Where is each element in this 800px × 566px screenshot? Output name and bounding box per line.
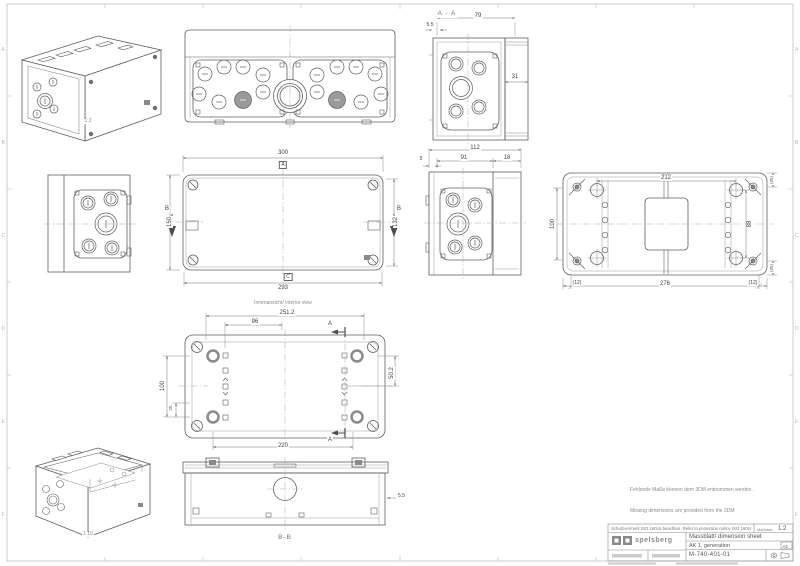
section-a-cutline (331, 327, 345, 438)
dim-lid-width: 300 (277, 150, 289, 156)
section-a-letter-bottom: A (327, 437, 333, 443)
view-side-left (44, 175, 136, 272)
dim-base-right: 88 (747, 220, 753, 229)
dim-bb-wall: 5.5 (397, 494, 406, 499)
view-section-aa (425, 18, 528, 145)
section-a-letter-top: A (327, 321, 333, 327)
dim-interior-right: 50.2 (389, 366, 395, 380)
grid-letter: E (795, 419, 798, 425)
section-aa-membranes (449, 57, 486, 118)
scale-field-label: Maßstab (757, 527, 773, 532)
document-title: Massblatt/ dimension sheet (689, 534, 762, 540)
dim-base-top: 212 (660, 175, 672, 181)
grid-letter: B (2, 140, 5, 146)
scale-label-iso-closed: 1:2 (84, 119, 93, 124)
interior-bosses (208, 351, 363, 423)
view-iso-closed-box (22, 36, 161, 141)
datum-box-top: A (279, 161, 287, 169)
document-number: M-740-401-01 (689, 552, 730, 558)
document-subtitle: AK 1. generation (689, 543, 730, 549)
view-interior (163, 313, 399, 450)
grid-letter: F (2, 512, 5, 518)
grid-letter: C (795, 233, 799, 239)
drawing-sheet: A B C D E F A B C D E F 1:2 A - A 79 5.5… (0, 0, 800, 566)
section-bb-title: B-B (277, 535, 293, 542)
small-membranes-right (310, 60, 388, 109)
dim-interior-height: 100 (160, 380, 166, 392)
grid-letter: B (795, 140, 798, 146)
section-b-letter-left: B (164, 206, 170, 212)
grid-letter: D (2, 326, 6, 332)
end-right-membranes (446, 193, 482, 254)
grid-letter: A (2, 47, 5, 53)
dim-end-body: 91 (460, 155, 469, 161)
view-section-bb (183, 457, 396, 530)
spelsberg-logo-icon (612, 536, 632, 545)
dim-end-cover: 18 (503, 155, 512, 161)
note-german: Fehlende Maße können dem 3DM entnommen w… (630, 487, 753, 493)
datum-box-bottom: C (284, 273, 293, 281)
dim-interior-bottom: 220 (277, 443, 289, 449)
view-top-knockouts (185, 25, 395, 128)
company-wordmark: spelsberg (635, 537, 673, 544)
section-aa-title: A - A (437, 11, 458, 18)
view-lid-top (166, 155, 398, 286)
dim-base-corner-top: (25) (770, 175, 775, 185)
sheet-size: A2 (783, 544, 789, 549)
view-iso-open-box (36, 448, 150, 537)
view-end-right (423, 148, 526, 280)
dim-lid-height: 150 (167, 216, 173, 228)
grid-letter: D (795, 326, 799, 332)
dim-base-offset-right: (12) (748, 281, 759, 286)
dim-aa-width: 79 (474, 13, 483, 19)
grid-letter: C (2, 233, 6, 239)
drawing-linework (0, 0, 800, 566)
grid-letter: E (2, 419, 5, 425)
dim-base-corner-bottom: (25) (770, 263, 775, 273)
dim-base-left: 100 (550, 218, 556, 230)
dim-interior-width-inner: 96 (251, 319, 260, 325)
grid-letter: A (795, 47, 798, 53)
dim-end-lip: 5 (419, 157, 424, 162)
dim-lid-width-inner: 293 (277, 285, 289, 291)
dim-base-offset-left: (12) (572, 281, 583, 286)
interior-view-caption: Innenansicht/ interior view (253, 301, 313, 306)
small-membranes-left (192, 60, 270, 109)
scale-label-iso-open: 1:10 (82, 532, 94, 537)
dim-interior-height-inner: 25 (169, 404, 174, 411)
dim-interior-width: 251.2 (278, 310, 295, 316)
grid-letter: F (795, 512, 798, 518)
projection-symbol-icon (771, 553, 789, 559)
dim-lid-height-inner: 132 (393, 216, 399, 228)
note-english: Missing dimensions are provided from the… (630, 508, 735, 514)
section-b-letter-right: B (396, 206, 402, 212)
view-base-interior (553, 173, 777, 289)
protection-note: Schutzvermerk ISO 16016 beachten. Refer … (611, 526, 751, 531)
side-left-membranes (81, 192, 119, 255)
dim-base-bottom: 276 (659, 281, 671, 287)
dim-end-total: 112 (469, 145, 481, 151)
scale-field-value: 1:2 (778, 526, 786, 532)
dim-aa-depth: 31 (511, 74, 520, 80)
dim-aa-wall: 5.5 (426, 23, 435, 28)
